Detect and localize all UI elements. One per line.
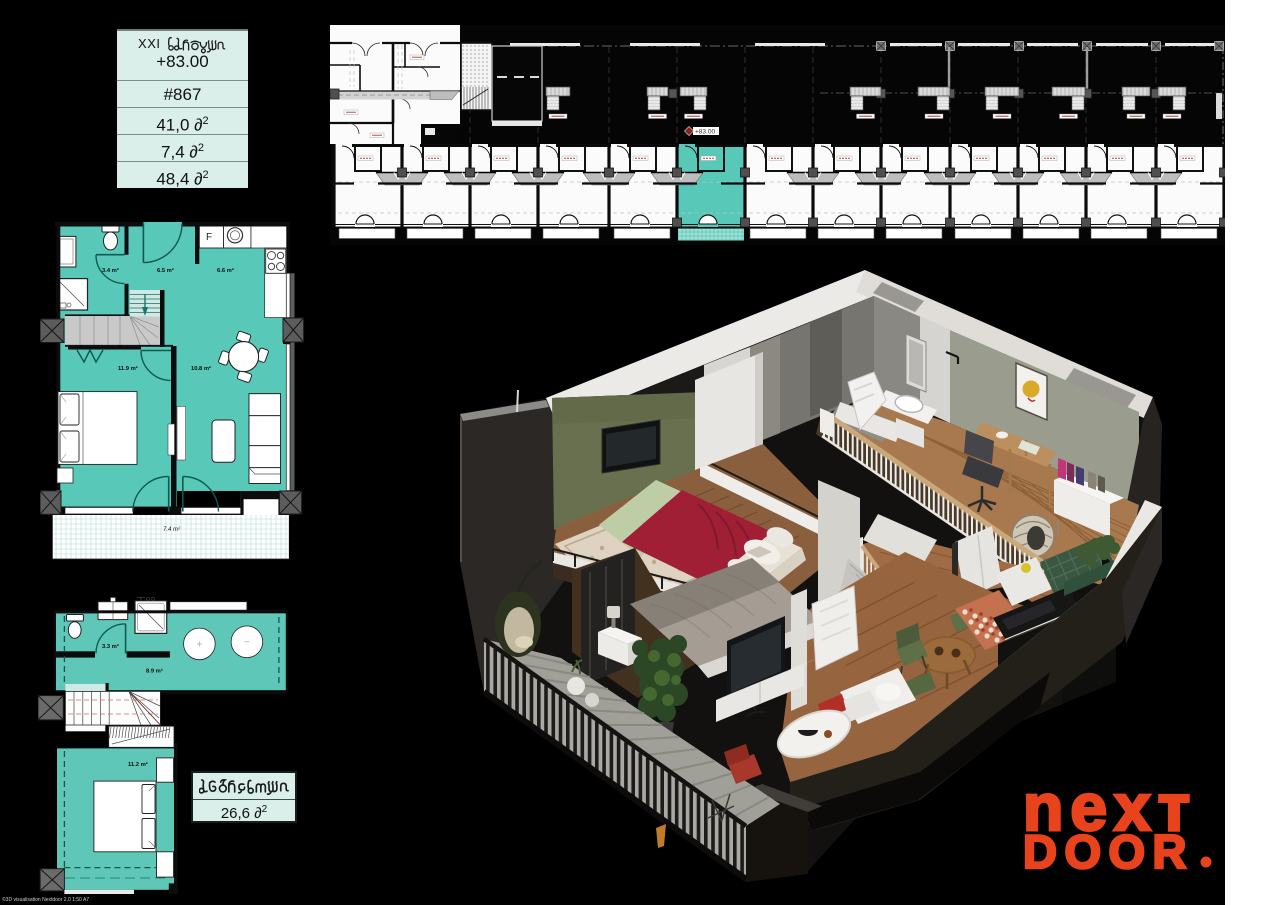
svg-text:11.9 m²: 11.9 m²: [118, 365, 138, 372]
svg-text:3.4 m²: 3.4 m²: [102, 267, 119, 274]
svg-text:F: F: [206, 232, 212, 243]
svg-text:10.8 m²: 10.8 m²: [191, 365, 211, 372]
svg-text:DOOR: DOOR: [1023, 825, 1194, 878]
svg-text:6.5 m²: 6.5 m²: [157, 267, 174, 274]
svg-text:3.3 m²: 3.3 m²: [102, 643, 119, 650]
svg-text:+83.00: +83.00: [695, 129, 715, 136]
svg-text:6.6 m²: 6.6 m²: [217, 267, 234, 274]
svg-text:11.2 m²: 11.2 m²: [128, 761, 148, 768]
svg-text:8.9 m²: 8.9 m²: [146, 668, 163, 675]
svg-text:7.4 m²: 7.4 m²: [163, 527, 181, 533]
